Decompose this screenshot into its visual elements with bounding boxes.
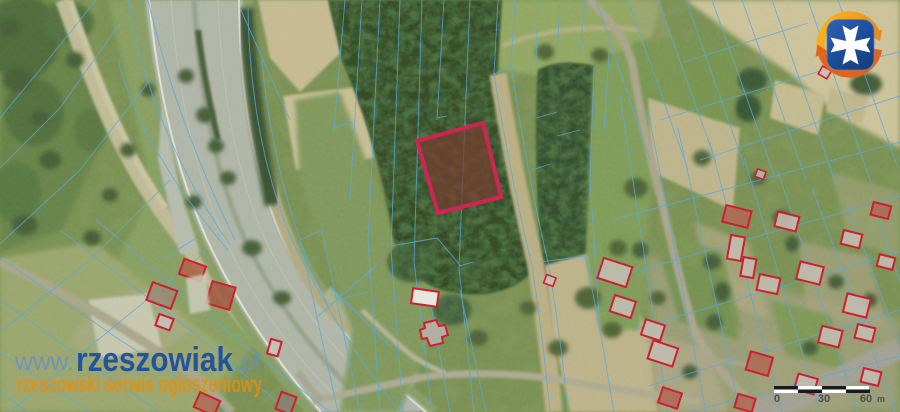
svg-text:30: 30 — [818, 393, 830, 405]
svg-text:0: 0 — [774, 393, 780, 405]
svg-text:60: 60 — [860, 393, 872, 405]
svg-text:rzeszowski serwis ogłoszeniowy: rzeszowski serwis ogłoszeniowy — [17, 371, 262, 397]
svg-text:m: m — [877, 394, 885, 404]
